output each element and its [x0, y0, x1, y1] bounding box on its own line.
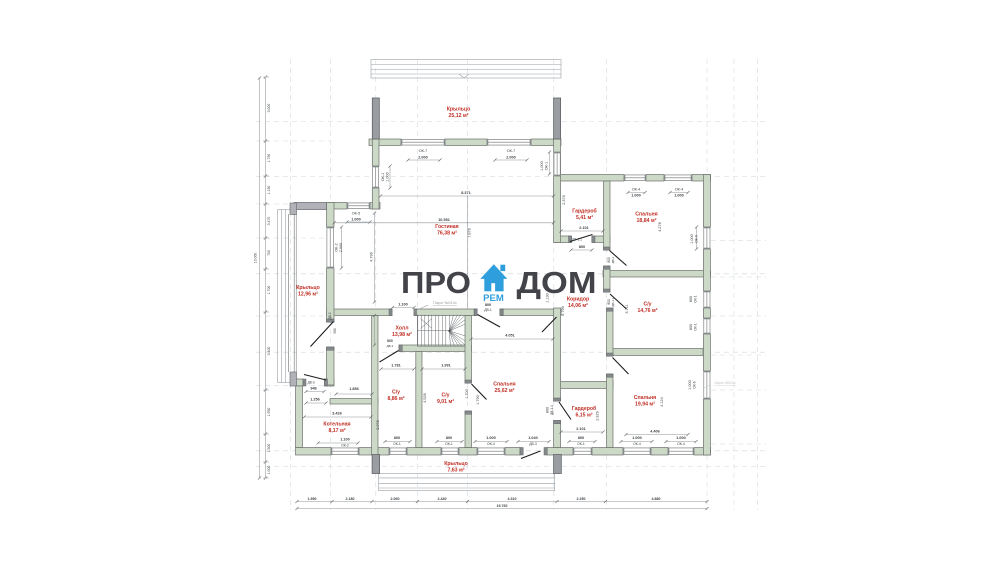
svg-text:1.000: 1.000 [351, 218, 361, 222]
svg-text:ОК-4: ОК-4 [675, 188, 684, 192]
svg-text:1.100: 1.100 [398, 303, 408, 307]
svg-text:800: 800 [689, 324, 693, 330]
svg-text:14,76 м²: 14,76 м² [638, 308, 658, 314]
svg-text:4.051: 4.051 [505, 334, 515, 338]
svg-text:2.440: 2.440 [438, 497, 447, 501]
svg-text:ОК-4: ОК-4 [633, 442, 641, 446]
svg-text:ПРО: ПРО [401, 266, 471, 300]
svg-text:1.000: 1.000 [632, 436, 642, 440]
svg-text:8.371: 8.371 [461, 191, 471, 195]
svg-text:1.000: 1.000 [267, 466, 271, 475]
svg-text:1.856: 1.856 [349, 387, 359, 391]
svg-text:ОК-5: ОК-5 [352, 212, 361, 216]
svg-text:7,63 м²: 7,63 м² [447, 468, 464, 474]
svg-text:2.180: 2.180 [346, 497, 355, 501]
svg-text:Гардероб: Гардероб [572, 208, 597, 215]
svg-text:С/у: С/у [392, 390, 400, 396]
svg-text:1.000: 1.000 [631, 194, 641, 198]
svg-text:ДВ-1.1: ДВ-1.1 [572, 238, 582, 242]
svg-text:ДОМ: ДОМ [517, 266, 597, 300]
svg-text:10.551: 10.551 [438, 218, 450, 222]
svg-text:1.590: 1.590 [308, 497, 317, 501]
svg-text:Спальня: Спальня [634, 395, 656, 401]
svg-text:ДВ-1.1: ДВ-1.1 [550, 405, 554, 415]
svg-text:12,96 м²: 12,96 м² [298, 292, 318, 298]
svg-text:ОК-2: ОК-2 [335, 243, 339, 252]
svg-text:2.250: 2.250 [577, 497, 586, 501]
svg-text:С/у: С/у [643, 302, 651, 308]
svg-text:2.000: 2.000 [339, 243, 343, 253]
svg-text:19,94 м²: 19,94 м² [635, 402, 655, 408]
svg-text:Лирог М010с: Лирог М010с [714, 381, 736, 385]
svg-text:ОК-1: ОК-1 [393, 442, 401, 446]
svg-text:2.101: 2.101 [576, 427, 586, 431]
svg-text:1.950: 1.950 [267, 408, 271, 417]
svg-text:ОК-4: ОК-4 [632, 188, 641, 192]
svg-text:ДВ-1: ДВ-1 [387, 344, 394, 348]
svg-text:Крыльцо: Крыльцо [447, 107, 471, 113]
svg-text:Спальня: Спальня [493, 382, 515, 388]
svg-text:1.000: 1.000 [676, 436, 686, 440]
svg-text:13,98 м²: 13,98 м² [392, 332, 412, 338]
svg-text:ОК-1: ОК-1 [445, 442, 453, 446]
svg-text:1.500: 1.500 [267, 444, 271, 453]
svg-text:2.376: 2.376 [562, 195, 566, 205]
svg-text:800: 800 [546, 407, 550, 413]
svg-text:1.000: 1.000 [688, 380, 692, 390]
svg-text:2.076: 2.076 [376, 420, 380, 430]
svg-text:6,15 м²: 6,15 м² [575, 413, 592, 419]
svg-text:1.700: 1.700 [465, 389, 469, 399]
svg-text:3.426: 3.426 [332, 412, 342, 416]
svg-text:800: 800 [689, 296, 693, 302]
svg-text:13.060: 13.060 [254, 253, 258, 264]
svg-text:4.880: 4.880 [652, 497, 661, 501]
svg-text:8,17 м²: 8,17 м² [328, 428, 345, 434]
svg-text:9,01 м²: 9,01 м² [437, 399, 454, 405]
svg-text:800: 800 [579, 245, 585, 249]
svg-text:4.124: 4.124 [660, 397, 664, 407]
svg-text:800: 800 [485, 303, 491, 307]
svg-text:ОК-4: ОК-4 [677, 442, 685, 446]
svg-text:1.000: 1.000 [386, 172, 390, 182]
svg-text:76,38 м²: 76,38 м² [437, 231, 457, 237]
svg-text:6.796: 6.796 [561, 306, 565, 316]
svg-text:ДВ-3: ДВ-3 [307, 381, 314, 385]
svg-text:1.000: 1.000 [674, 194, 684, 198]
svg-text:Крыльцо: Крыльцо [296, 285, 320, 291]
svg-text:1.100: 1.100 [340, 438, 350, 442]
svg-text:1.790: 1.790 [476, 395, 480, 405]
svg-text:ОК-1: ОК-1 [694, 295, 698, 302]
svg-text:С/у: С/у [441, 393, 449, 399]
svg-text:19.760: 19.760 [497, 504, 508, 508]
svg-text:800: 800 [446, 436, 452, 440]
svg-text:ОК-6: ОК-6 [695, 235, 699, 243]
svg-text:2.101: 2.101 [579, 226, 589, 230]
svg-text:2.000: 2.000 [506, 156, 516, 160]
svg-text:700: 700 [267, 250, 271, 256]
svg-text:Гостиная: Гостиная [435, 224, 458, 230]
svg-text:ОК-1: ОК-1 [577, 442, 585, 446]
svg-text:1.130: 1.130 [267, 186, 271, 195]
svg-text:4.310: 4.310 [508, 497, 517, 501]
svg-text:3.400: 3.400 [267, 347, 271, 356]
svg-text:Холл: Холл [395, 326, 408, 332]
svg-text:ОК-4: ОК-4 [487, 442, 495, 446]
svg-text:800: 800 [387, 339, 393, 343]
svg-text:ДВ-1: ДВ-1 [484, 308, 492, 312]
svg-text:5,41 м²: 5,41 м² [576, 215, 593, 221]
svg-text:ОК-1: ОК-1 [381, 173, 385, 182]
svg-text:1.000: 1.000 [690, 234, 694, 244]
svg-text:РЕМ: РЕМ [483, 293, 504, 303]
svg-text:Гардероб: Гардероб [572, 405, 597, 412]
svg-text:Спальня: Спальня [635, 212, 657, 218]
svg-text:980: 980 [333, 328, 337, 334]
svg-text:1.750: 1.750 [267, 154, 271, 163]
svg-text:ОК-7: ОК-7 [419, 149, 428, 153]
svg-text:18,84 м²: 18,84 м² [637, 218, 657, 224]
svg-text:ОК-7: ОК-7 [507, 149, 516, 153]
svg-text:3.470: 3.470 [267, 217, 271, 226]
svg-text:Крыльцо: Крыльцо [444, 461, 468, 467]
svg-text:1.000: 1.000 [540, 161, 544, 171]
svg-text:7.876: 7.876 [468, 228, 472, 238]
svg-text:ОК-1: ОК-1 [545, 162, 549, 171]
svg-text:8,86 м²: 8,86 м² [387, 396, 404, 402]
svg-text:1.781: 1.781 [391, 364, 401, 368]
svg-text:800: 800 [394, 436, 400, 440]
svg-text:ДВ-3: ДВ-3 [529, 442, 537, 446]
svg-text:1.000: 1.000 [486, 436, 496, 440]
svg-text:3.000: 3.000 [267, 104, 271, 113]
svg-text:ДВ-1: ДВ-1 [611, 256, 615, 263]
svg-text:25,62 м²: 25,62 м² [495, 388, 515, 394]
svg-text:800: 800 [578, 436, 584, 440]
svg-text:4.796: 4.796 [370, 252, 374, 262]
svg-text:3.711: 3.711 [625, 304, 629, 313]
svg-text:1.991: 1.991 [441, 364, 451, 368]
svg-text:1.256: 1.256 [310, 398, 320, 402]
svg-text:ДВ-2: ДВ-2 [328, 312, 332, 319]
svg-text:25,12 м²: 25,12 м² [449, 113, 469, 119]
svg-text:1.700: 1.700 [267, 286, 271, 295]
svg-text:ОК-1: ОК-1 [694, 323, 698, 330]
svg-text:4.278: 4.278 [658, 222, 662, 232]
svg-text:4.526: 4.526 [423, 393, 427, 403]
svg-text:4.406: 4.406 [650, 430, 660, 434]
svg-text:2.929: 2.929 [596, 411, 600, 421]
svg-text:ОК-2: ОК-2 [341, 444, 349, 448]
svg-text:1.040: 1.040 [528, 436, 538, 440]
svg-text:14,06 м²: 14,06 м² [568, 303, 588, 309]
svg-text:ОК-8: ОК-8 [693, 381, 697, 388]
svg-text:2.000: 2.000 [418, 156, 428, 160]
svg-text:948: 948 [310, 387, 316, 391]
svg-text:ДВ-1.1: ДВ-1.1 [611, 297, 615, 307]
svg-text:Котельная: Котельная [323, 422, 350, 428]
svg-text:2.060: 2.060 [391, 497, 400, 501]
svg-text:Парог №010с: Парог №010с [433, 301, 457, 305]
